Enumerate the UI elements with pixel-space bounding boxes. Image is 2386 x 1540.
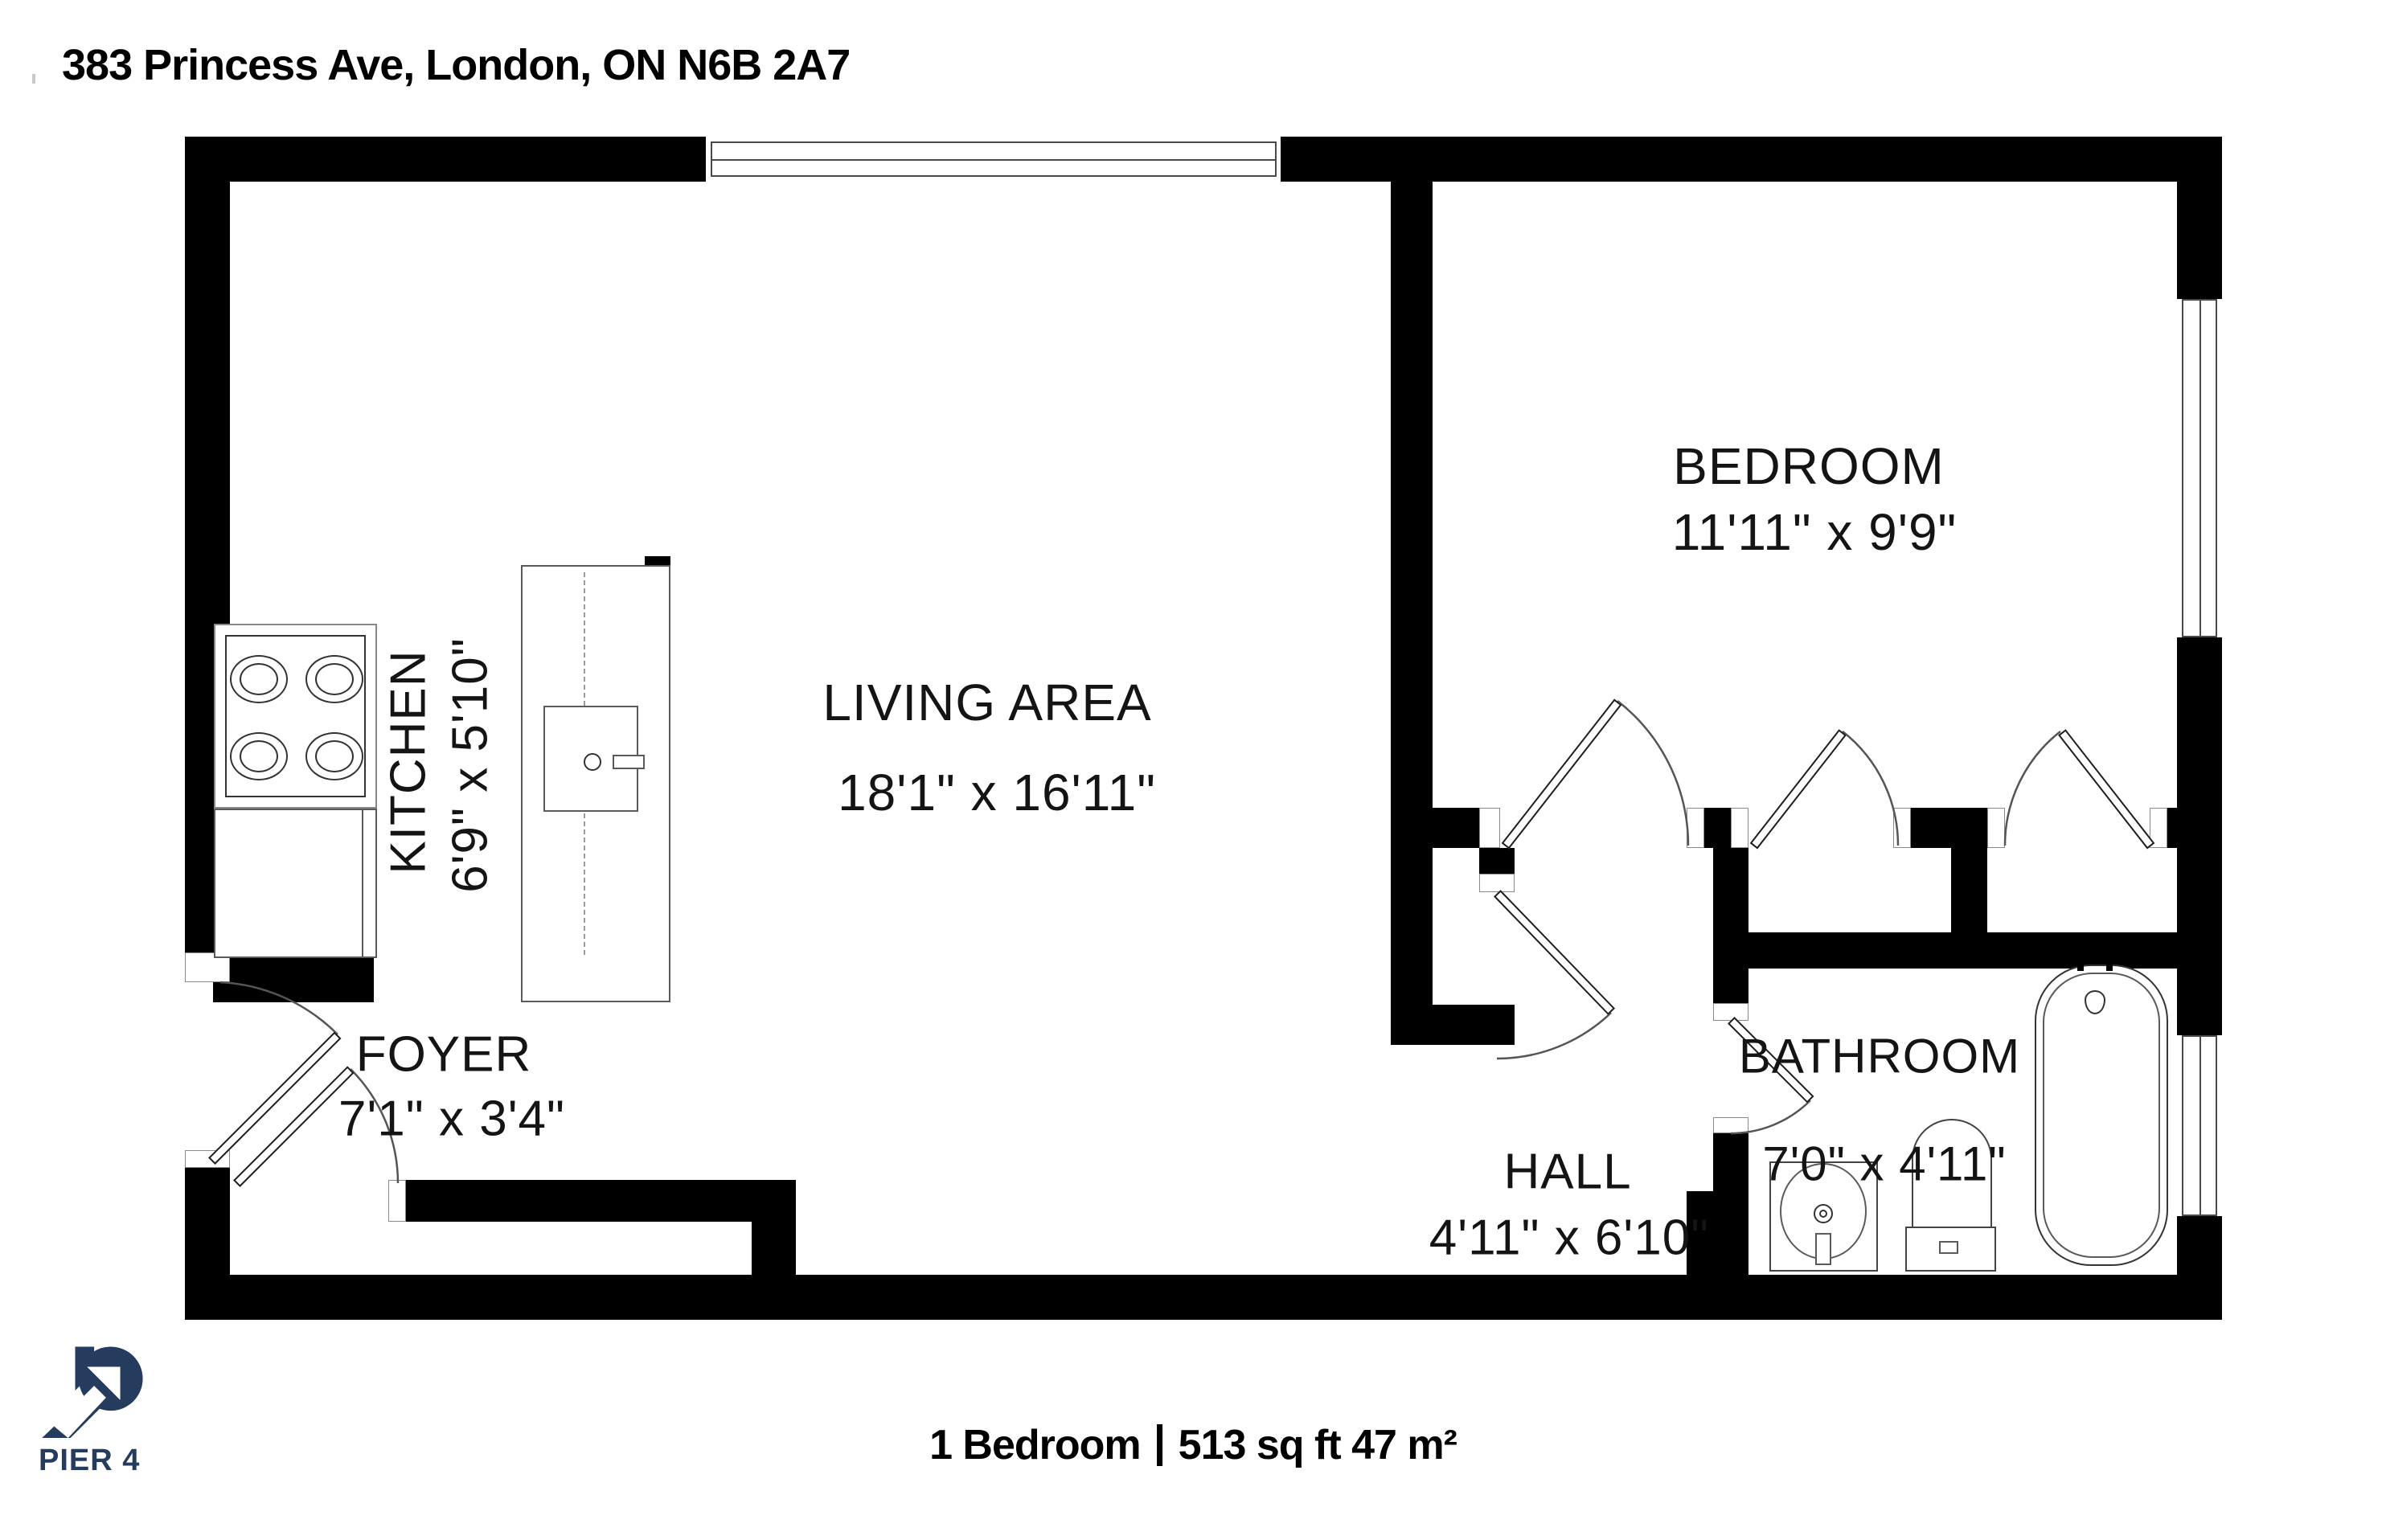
label-hall-dims: 4'11" x 6'10"	[1429, 1210, 1709, 1267]
wall-closet-left	[1713, 848, 1749, 932]
label-bedroom: BEDROOM	[1673, 436, 1945, 496]
jamb-closet1-right	[1893, 808, 1911, 848]
wall-bathroom-west-upper	[1713, 969, 1749, 1003]
wall-bedroom-south-b	[1704, 808, 1731, 848]
wall-living-bedroom-divider	[1391, 182, 1433, 1045]
bathtub-pipe-2	[2106, 934, 2113, 971]
footer-summary: 1 Bedroom 513 sq ft 47 m²	[929, 1421, 1457, 1469]
kitchen-faucet	[584, 753, 601, 771]
wall-hall-door-wing	[1479, 848, 1515, 874]
label-kitchen: KITCHEN	[380, 649, 437, 874]
window-bedroom-right	[2182, 299, 2217, 637]
wall-closet-divider	[1951, 848, 1987, 932]
jamb-bedroom-door-right	[1687, 808, 1704, 848]
stove-burner-3-inner	[240, 740, 278, 772]
wall-bedroom-south-a	[1391, 808, 1479, 848]
wall-right-lower	[2177, 1216, 2222, 1320]
door-leaf-closet1	[1750, 729, 1847, 849]
jamb-hall-door	[1479, 874, 1515, 892]
jamb-closet1-left	[1731, 808, 1749, 848]
footer-separator	[1157, 1424, 1162, 1466]
footer-bedroom-count: 1 Bedroom	[929, 1421, 1141, 1469]
door-leaf-hall	[1494, 890, 1615, 1015]
footer-area: 513 sq ft 47 m²	[1179, 1421, 1457, 1469]
wall-bedroom-south-d	[2167, 808, 2216, 848]
page-title: 383 Princess Ave, London, ON N6B 2A7	[62, 40, 850, 90]
wall-kitchen-south	[213, 958, 374, 1002]
arc-closet1-door	[1843, 731, 1898, 846]
kitchen-faucet-handle	[613, 755, 645, 769]
margin-tick	[32, 74, 35, 84]
toilet-flush-button	[1939, 1241, 1958, 1254]
wall-top-right	[1281, 137, 2222, 182]
wall-bedroom-south-c	[1911, 808, 1987, 848]
jamb-closet2-left	[1987, 808, 2005, 848]
bathroom-drain	[1815, 1233, 1831, 1265]
jamb-bathroom-door-top	[1713, 1003, 1749, 1021]
wall-right-upper	[2177, 137, 2222, 299]
arc-bedroom-door	[1617, 701, 1688, 846]
label-bathroom-dims: 7'0" x 4'11"	[1762, 1137, 2006, 1192]
stove-burner-4-inner	[315, 740, 354, 772]
door-leaf-closet2	[2058, 729, 2154, 849]
floor-plan-canvas: 383 Princess Ave, London, ON N6B 2A7	[0, 0, 2386, 1540]
stove-burner-1-inner	[240, 663, 278, 695]
wall-top-left	[185, 137, 706, 182]
jamb-bathroom-door-bottom	[1713, 1117, 1749, 1133]
pier4-logo	[39, 1345, 159, 1444]
wall-bottom	[185, 1275, 2222, 1320]
door-leaf-bedroom	[1502, 698, 1622, 849]
stove-burner-2-inner	[315, 663, 354, 695]
wall-chase-hollow	[1433, 848, 1479, 1005]
wall-hall-foot	[1391, 1005, 1515, 1045]
pier4-logo-icon	[39, 1345, 159, 1440]
label-bedroom-dims: 11'11" x 9'9"	[1672, 502, 1958, 562]
bathtub-inner	[2043, 973, 2160, 1258]
jamb-foyer-wall	[388, 1180, 406, 1222]
label-bathroom: BATHROOM	[1739, 1029, 2020, 1084]
arc-closet2-door	[2005, 731, 2060, 846]
window-living-top	[711, 141, 1277, 177]
wall-bathroom-west-lower	[1713, 1133, 1749, 1275]
wall-foyer-step	[752, 1222, 796, 1275]
label-foyer-dims: 7'1" x 3'4"	[338, 1091, 565, 1148]
label-hall: HALL	[1503, 1144, 1631, 1201]
wall-foyer-south	[406, 1180, 796, 1222]
label-living-dims: 18'1" x 16'11"	[838, 763, 1156, 822]
pier4-logo-text: PIER 4	[39, 1444, 140, 1478]
bathtub-pipe-1	[2077, 934, 2084, 971]
label-living: LIVING AREA	[822, 673, 1151, 732]
kitchen-counter-edge	[362, 809, 363, 958]
window-bathroom-right	[2182, 1035, 2217, 1216]
label-foyer: FOYER	[356, 1026, 532, 1083]
kitchen-counter	[214, 809, 377, 958]
label-kitchen-dims: 6'9" x 5'10"	[442, 637, 499, 893]
jamb-bedroom-door-left	[1479, 808, 1500, 848]
bathroom-faucet-inner	[1819, 1210, 1827, 1218]
